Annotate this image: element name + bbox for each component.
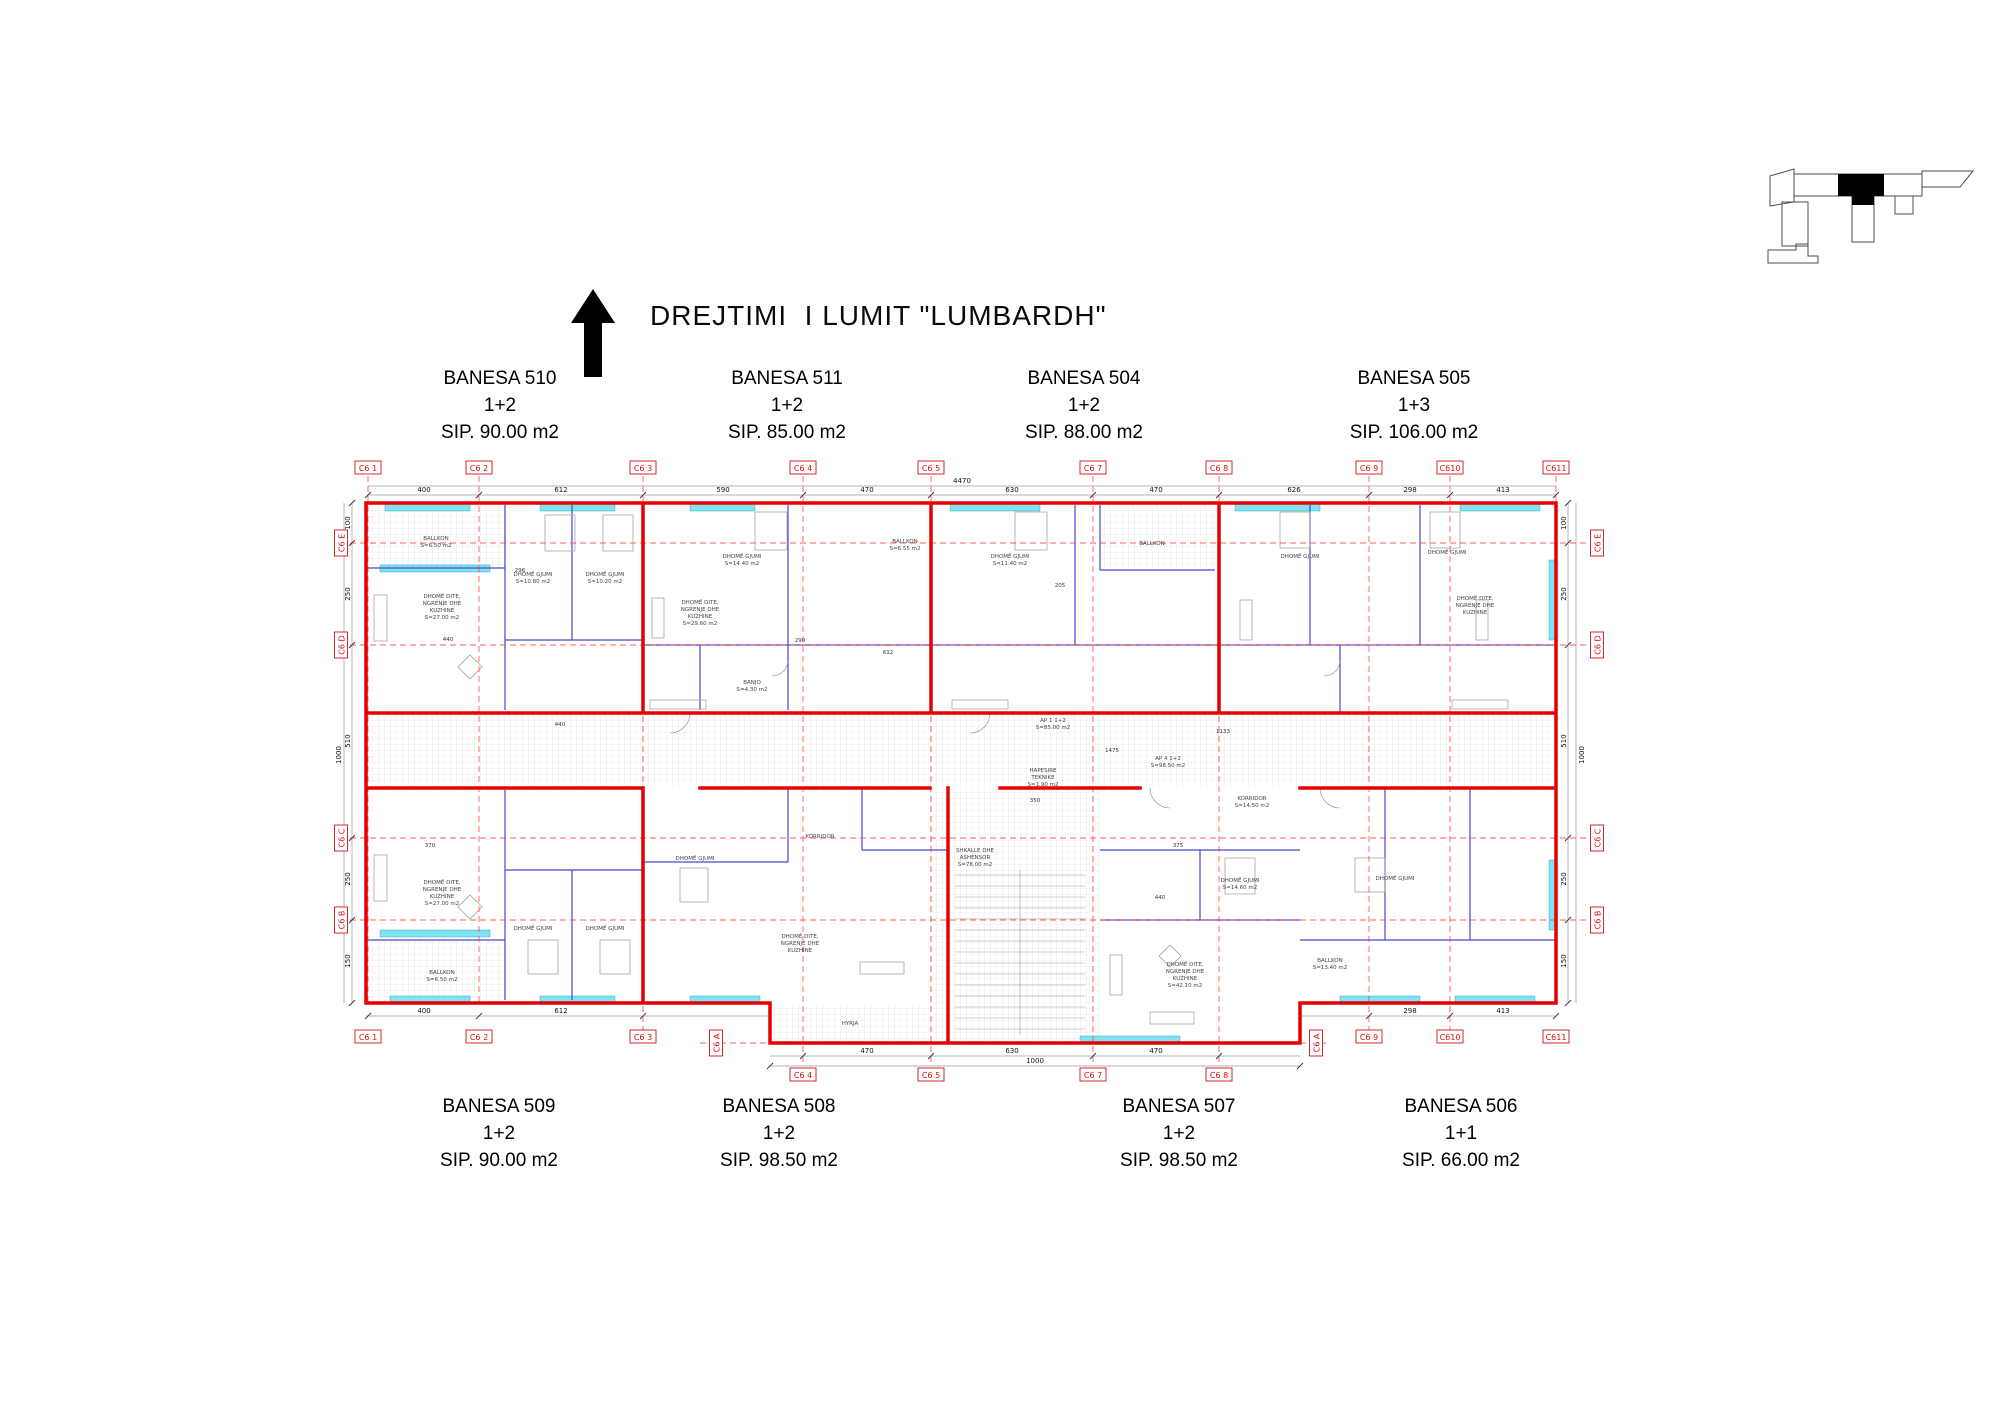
room-label: KORRIDOR [805, 834, 834, 840]
dim-text: 470 [1149, 1047, 1162, 1055]
unit-label-banesa-509: BANESA 509 1+2 SIP. 90.00 m2 [379, 1094, 619, 1175]
dim-text: 250 [1560, 872, 1568, 885]
key-plan-block [1782, 202, 1808, 246]
svg-text:C610: C610 [1440, 1033, 1461, 1042]
room-label: BALLKON [1317, 958, 1342, 964]
svg-text:C6 5: C6 5 [922, 1071, 940, 1080]
room-label: DHOMË GJUMI [1428, 549, 1467, 556]
dim-text: 370 [425, 843, 436, 849]
room-label: DHOMË GJUMI [1376, 875, 1415, 882]
dim-text: 413 [1496, 1007, 1509, 1015]
grid-bubble: C6 3 [630, 461, 656, 474]
room-label: DHOMË DITE, [1166, 961, 1203, 968]
north-arrow-shape [571, 289, 615, 377]
svg-text:C6 2: C6 2 [470, 1033, 488, 1042]
dim-text: 612 [554, 1007, 567, 1015]
dim-text: 630 [1005, 486, 1018, 494]
dim-text: 440 [443, 637, 454, 643]
key-plan [1760, 160, 1985, 280]
svg-text:C6 8: C6 8 [1210, 1071, 1228, 1080]
unit-name: BANESA 505 [1294, 366, 1534, 393]
dim-text: 205 [1055, 583, 1066, 589]
room-label: S=29.60 m2 [683, 621, 717, 627]
grid-bubble: C6 C [1591, 825, 1604, 851]
room-label: S=14.60 m2 [1223, 885, 1257, 891]
unit-label-banesa-508: BANESA 508 1+2 SIP. 98.50 m2 [659, 1094, 899, 1175]
grid-bubble: C6 5 [918, 1068, 944, 1081]
room-label: DHOMË GJUMI [586, 571, 625, 578]
room-label: S=85.00 m2 [1036, 725, 1070, 731]
dim-text: 400 [417, 486, 430, 494]
unit-label-banesa-511: BANESA 511 1+2 SIP. 85.00 m2 [667, 366, 907, 447]
room-label: NGRENJE DHE [681, 607, 720, 613]
svg-text:C6 E: C6 E [1594, 534, 1603, 552]
room-label: DHOMË GJUMI [1281, 553, 1320, 560]
room-label: DHOMË DITE, [423, 879, 460, 886]
dim-text: 1000 [1578, 746, 1586, 764]
dim-text: 298 [1403, 486, 1416, 494]
grid-bubble: C6 D [1591, 632, 1604, 658]
drawing-sheet: DREJTIMI I LUMIT "LUMBARDH" BANESA 510 1… [0, 0, 2000, 1415]
room-label: S=6.50 m2 [421, 543, 452, 549]
dim-text: 470 [1149, 486, 1162, 494]
grid-bubble: C610 [1437, 1030, 1463, 1043]
key-plan-block [1768, 244, 1818, 263]
dim-text: 470 [860, 486, 873, 494]
key-plan-block [1770, 169, 1794, 206]
room-label: BALLKON [429, 970, 454, 976]
svg-text:C6 4: C6 4 [794, 1071, 812, 1080]
room-label: S=14.40 m2 [725, 561, 759, 567]
room-label: SHKALLE DHE [956, 848, 995, 854]
unit-rooms: 1+2 [1059, 1121, 1299, 1148]
svg-text:C6 A: C6 A [1313, 1033, 1322, 1052]
dim-text: 250 [1560, 587, 1568, 600]
dim-text: 4470 [953, 477, 971, 485]
grid-bubble: C6 B [1591, 907, 1604, 933]
dim-text: 612 [883, 650, 894, 656]
grid-bubble: C6 1 [355, 1030, 381, 1043]
room-label: S=10.80 m2 [516, 579, 550, 585]
svg-text:C611: C611 [1546, 1033, 1567, 1042]
svg-text:C6 3: C6 3 [634, 464, 652, 473]
dim-text: 440 [555, 722, 566, 728]
dim-text: 290 [795, 638, 806, 644]
room-label: S=6.50 m2 [427, 977, 458, 983]
room-label: ASHENSOR [960, 855, 991, 861]
room-label: DHOMË DITE, [423, 593, 460, 600]
unit-rooms: 1+3 [1294, 393, 1534, 420]
unit-area: SIP. 90.00 m2 [379, 1148, 619, 1175]
grid-bubble: C6 E [1591, 530, 1604, 556]
grid-bubble: C6 4 [790, 1068, 816, 1081]
room-label: DHOMË DITE, [1456, 595, 1493, 602]
svg-text:C6 D: C6 D [1594, 635, 1603, 654]
grid-bubble: C6 C [335, 825, 348, 851]
svg-text:C6 B: C6 B [1594, 911, 1603, 930]
grid-bubble: C6 5 [918, 461, 944, 474]
room-label: S=13.40 m2 [1313, 965, 1347, 971]
dim-text: 470 [860, 1047, 873, 1055]
room-label: KORRIDOR [1237, 796, 1266, 802]
room-label: HYRJA [842, 1021, 859, 1027]
svg-text:C6 9: C6 9 [1360, 1033, 1378, 1042]
unit-label-banesa-510: BANESA 510 1+2 SIP. 90.00 m2 [380, 366, 620, 447]
unit-rooms: 1+2 [964, 393, 1204, 420]
room-label: S=27.00 m2 [425, 615, 459, 621]
unit-label-banesa-507: BANESA 507 1+2 SIP. 98.50 m2 [1059, 1094, 1299, 1175]
dim-text: 150 [1560, 954, 1568, 967]
room-label: S=11.40 m2 [993, 561, 1027, 567]
grid-bubble: C611 [1543, 1030, 1569, 1043]
svg-text:C610: C610 [1440, 464, 1461, 473]
room-label: DHOMË DITE, [681, 599, 718, 606]
unit-area: SIP. 98.50 m2 [1059, 1148, 1299, 1175]
grid-bubble: C6 A [710, 1030, 723, 1056]
room-label: S=4.30 m2 [737, 687, 768, 693]
grid-bubble: C6 B [335, 907, 348, 933]
room-label: S=14.50 m2 [1235, 803, 1269, 809]
svg-text:C6 C: C6 C [1594, 828, 1603, 847]
svg-text:C6 4: C6 4 [794, 464, 812, 473]
unit-rooms: 1+1 [1341, 1121, 1581, 1148]
unit-label-banesa-505: BANESA 505 1+3 SIP. 106.00 m2 [1294, 366, 1534, 447]
key-plan-current-building-notch [1852, 196, 1874, 205]
hatch-zones [368, 505, 1554, 1041]
room-label: DHOMË GJUMI [514, 925, 553, 932]
grid-bubble: C610 [1437, 461, 1463, 474]
unit-rooms: 1+2 [379, 1121, 619, 1148]
dim-text: 350 [1030, 798, 1041, 804]
room-label: NGRENJE DHE [781, 941, 820, 947]
room-label: DHOMË GJUMI [991, 553, 1030, 560]
dim-text: 1000 [1026, 1057, 1044, 1065]
svg-text:C6 C: C6 C [338, 828, 347, 847]
dim-text: 1475 [1105, 748, 1119, 754]
grid-bubble: C6 D [335, 632, 348, 658]
room-label: DHOMË GJUMI [514, 571, 553, 578]
key-plan-current-building [1838, 174, 1884, 196]
room-label: S=6.55 m2 [890, 546, 921, 552]
room-label: KUZHINE [788, 948, 813, 954]
dim-text: 375 [1173, 843, 1184, 849]
room-label: S=98.50 m2 [1151, 763, 1185, 769]
dim-text: 250 [344, 872, 352, 885]
room-label: KUZHINE [430, 894, 455, 900]
svg-text:C611: C611 [1546, 464, 1567, 473]
room-label: KUZHINE [430, 608, 455, 614]
svg-text:C6 7: C6 7 [1084, 464, 1102, 473]
grid-bubble: C611 [1543, 461, 1569, 474]
room-label: S=78.00 m2 [958, 862, 992, 868]
room-label: DHOMË GJUMI [723, 553, 762, 560]
dim-text: 150 [344, 954, 352, 967]
dim-text: 250 [344, 587, 352, 600]
dim-text: 413 [1496, 486, 1509, 494]
dim-text: 630 [1005, 1047, 1018, 1055]
floor-plan: 4470 400 612 590 470 630 470 626 298 413… [330, 440, 1620, 1100]
unit-name: BANESA 510 [380, 366, 620, 393]
grid-bubble: C6 7 [1080, 461, 1106, 474]
unit-area: SIP. 98.50 m2 [659, 1148, 899, 1175]
dim-text: 1133 [1216, 729, 1230, 735]
svg-text:C6 1: C6 1 [359, 1033, 377, 1042]
dim-text: 100 [344, 516, 352, 529]
room-label: KUZHINE [688, 614, 713, 620]
svg-text:C6 2: C6 2 [470, 464, 488, 473]
svg-text:C6 7: C6 7 [1084, 1071, 1102, 1080]
unit-rooms: 1+2 [380, 393, 620, 420]
room-label: AP 1 1+2 [1040, 718, 1066, 724]
room-label: BALLKON [423, 536, 448, 542]
unit-rooms: 1+2 [659, 1121, 899, 1148]
unit-area: SIP. 66.00 m2 [1341, 1148, 1581, 1175]
room-label: AP 4 1+2 [1155, 756, 1181, 762]
dim-text: 440 [1155, 895, 1166, 901]
unit-name: BANESA 511 [667, 366, 907, 393]
grid-bubble: C6 4 [790, 461, 816, 474]
dim-text: 298 [1403, 1007, 1416, 1015]
dim-text: 510 [344, 734, 352, 747]
grid-bubble: C6 2 [466, 1030, 492, 1043]
north-arrow-icon [570, 289, 616, 377]
dim-text: 510 [1560, 734, 1568, 747]
svg-text:C6 9: C6 9 [1360, 464, 1378, 473]
dim-text: 400 [417, 1007, 430, 1015]
dim-text: 590 [716, 486, 729, 494]
grid-bubble: C6 8 [1206, 461, 1232, 474]
room-label: DHOMË GJUMI [1221, 877, 1260, 884]
dim-text: 626 [1287, 486, 1301, 494]
unit-rooms: 1+2 [667, 393, 907, 420]
room-label: NGRENJE DHE [423, 887, 462, 893]
grid-bubble: C6 2 [466, 461, 492, 474]
svg-text:C6 E: C6 E [338, 534, 347, 552]
unit-label-banesa-506: BANESA 506 1+1 SIP. 66.00 m2 [1341, 1094, 1581, 1175]
grid-bubble: C6 E [335, 530, 348, 556]
grid-bubble: C6 7 [1080, 1068, 1106, 1081]
room-label: HAPESIRE [1029, 768, 1057, 774]
grid-bubble: C6 1 [355, 461, 381, 474]
room-label: S=10.20 m2 [588, 579, 622, 585]
drawing-title: DREJTIMI I LUMIT "LUMBARDH" [650, 300, 1107, 332]
svg-text:C6 3: C6 3 [634, 1033, 652, 1042]
room-label: KUZHINE [1463, 610, 1488, 616]
room-label: S=42.10 m2 [1168, 983, 1202, 989]
room-label: DHOMË GJUMI [676, 855, 715, 862]
key-plan-wing [1922, 171, 1973, 187]
grid-bubble: C6 3 [630, 1030, 656, 1043]
svg-text:C6 B: C6 B [338, 911, 347, 930]
dim-text: 612 [554, 486, 567, 494]
svg-text:C6 1: C6 1 [359, 464, 377, 473]
room-label: BANJO [743, 680, 761, 686]
grid-bubble: C6 9 [1356, 1030, 1382, 1043]
room-label: BALLKON [892, 539, 917, 545]
dim-text: 100 [1560, 516, 1568, 529]
grid-bubble: C6 A [1310, 1030, 1323, 1056]
key-plan-block [1895, 196, 1913, 214]
room-label: DHOMË GJUMI [586, 925, 625, 932]
svg-text:C6 8: C6 8 [1210, 464, 1228, 473]
unit-name: BANESA 504 [964, 366, 1204, 393]
dim-text: 1000 [335, 746, 343, 764]
unit-label-banesa-504: BANESA 504 1+2 SIP. 88.00 m2 [964, 366, 1204, 447]
svg-text:C6 D: C6 D [338, 635, 347, 654]
room-label: KUZHINE [1173, 976, 1198, 982]
room-label: TEKNIKE [1030, 775, 1055, 781]
room-label: NGRENJE DHE [1456, 603, 1495, 609]
svg-text:C6 A: C6 A [713, 1033, 722, 1052]
room-label: S=1.90 m2 [1028, 782, 1059, 788]
grid-bubble: C6 8 [1206, 1068, 1232, 1081]
svg-text:C6 5: C6 5 [922, 464, 940, 473]
room-label: NGRENJE DHE [1166, 969, 1205, 975]
room-label: S=27.00 m2 [425, 901, 459, 907]
room-label: BALLKON [1139, 541, 1164, 547]
room-label: NGRENJE DHE [423, 601, 462, 607]
grid-bubble: C6 9 [1356, 461, 1382, 474]
room-label: DHOMË DITE, [781, 933, 818, 940]
